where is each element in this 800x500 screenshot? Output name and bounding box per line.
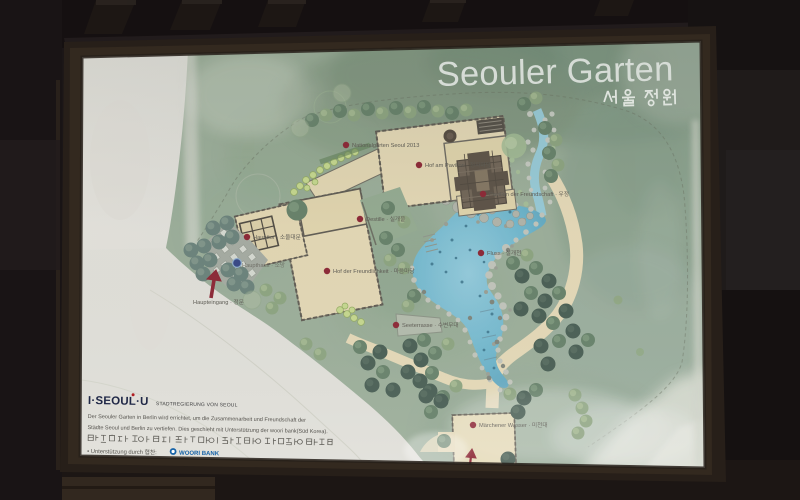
svg-text:I·SEOUL·U: I·SEOUL·U (88, 395, 149, 408)
svg-text:WOORI BANK: WOORI BANK (179, 451, 220, 458)
svg-text:Seouler Garten: Seouler Garten (436, 50, 674, 94)
